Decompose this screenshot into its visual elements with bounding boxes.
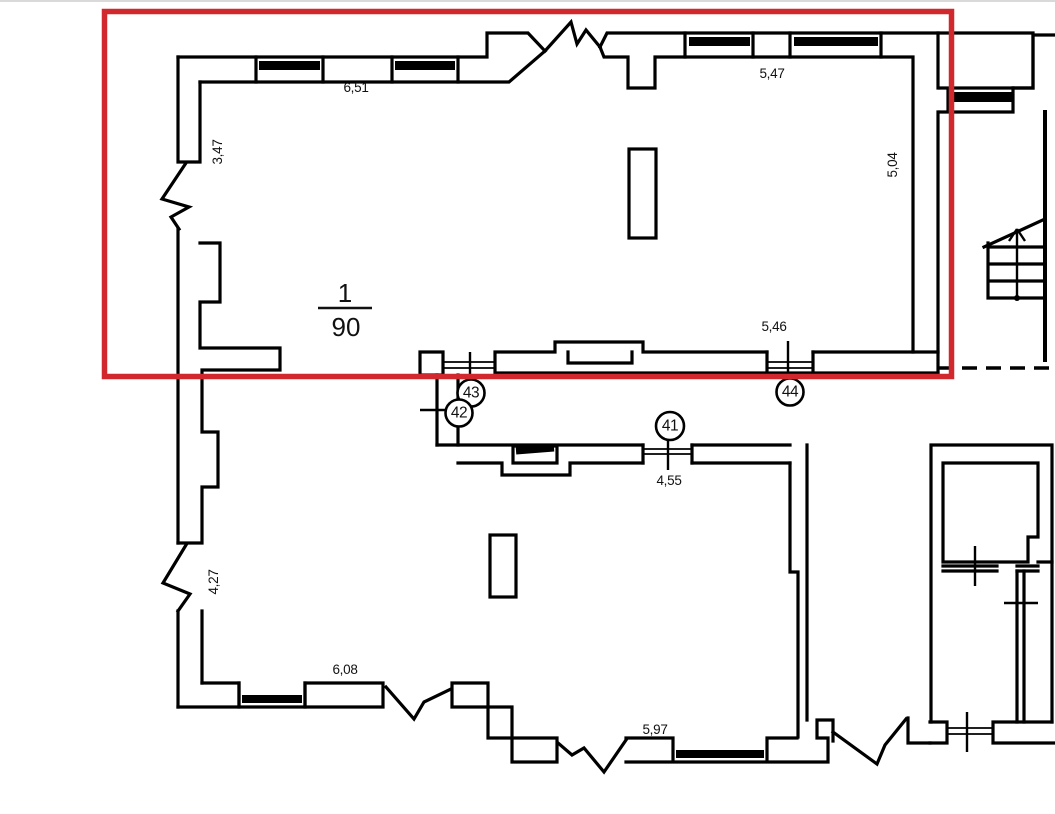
scale-label: 1 90	[318, 278, 372, 342]
window-top-left-a-glass	[259, 61, 320, 70]
marker-43-label: 43	[463, 385, 479, 402]
marker-41-label: 41	[662, 418, 678, 435]
marker-42: 42	[446, 400, 473, 427]
window-top-right-b-glass	[794, 37, 878, 46]
top-right-entrance	[1013, 35, 1055, 88]
floor-plan-svg: 43 42 41 44 6,51 5,47 3,47 5,04 5,46 4,5…	[0, 0, 1055, 814]
marker-44-label: 44	[782, 384, 799, 401]
marker-44: 44	[777, 379, 804, 406]
lower-left-break-line	[163, 545, 190, 611]
upper-left-wall-piece1	[178, 57, 200, 162]
right-building-inner-partition	[1017, 571, 1024, 722]
scale-numerator: 1	[338, 278, 352, 308]
dim-top-left: 6,51	[343, 80, 368, 95]
marker-42-label: 42	[451, 405, 467, 422]
lower-left-wall-piece	[178, 611, 202, 707]
stairs	[984, 219, 1045, 301]
stair-arrow-origin-dot	[1014, 295, 1020, 301]
upper-top-break-line	[545, 22, 600, 51]
bottom-break-line-3	[833, 719, 906, 764]
window-bottom-mid-glass	[676, 750, 764, 758]
upper-door-stub	[420, 352, 443, 375]
column-upper-room	[629, 149, 656, 238]
upper-top-left-wall-outer	[178, 33, 545, 57]
upper-door-threshold-right	[767, 362, 813, 368]
upper-left-break-line	[162, 163, 189, 229]
window-bottom-left-glass	[242, 695, 302, 703]
dim-right-upper: 5,04	[885, 152, 900, 178]
bottom-break-line-2	[558, 740, 626, 772]
bottom-step-wall	[452, 683, 557, 762]
right-building-outline	[931, 445, 1052, 722]
upper-top-right-wall-inner-with-pillar	[600, 47, 913, 352]
column-second-room	[490, 535, 516, 597]
upper-bottom-wall	[495, 342, 938, 373]
dim-left-upper: 3,47	[210, 139, 225, 164]
windows	[239, 33, 1013, 758]
right-building-bottom-threshold	[947, 728, 993, 734]
bottom-break-line-1	[386, 687, 451, 719]
dim-left-lower: 4,27	[206, 569, 221, 594]
upper-bottom-niche	[568, 352, 632, 363]
window-right-passage-glass	[953, 92, 1013, 102]
dim-mid-right: 5,46	[761, 319, 786, 334]
right-building-inner-room	[943, 463, 1038, 562]
dim-bottom-mid: 5,97	[642, 722, 667, 737]
dim-top-right: 5,47	[759, 66, 784, 81]
scale-denominator: 90	[332, 312, 361, 342]
second-room-top-wall	[437, 445, 790, 475]
window-top-left-b-glass	[395, 61, 455, 70]
survey-ticks	[420, 341, 1038, 752]
upper-room-walls	[162, 22, 1033, 543]
marker-41: 41	[656, 412, 684, 440]
point-markers: 43 42 41 44	[446, 379, 804, 441]
window-top-right-a-glass	[689, 37, 750, 46]
screen-top-edge	[0, 0, 1055, 2]
floor-plan-page: 43 42 41 44 6,51 5,47 3,47 5,04 5,46 4,5…	[0, 0, 1055, 814]
bottom-right-step-piece	[908, 718, 930, 743]
dim-mid-partition: 4,55	[656, 473, 681, 488]
left-wall-inner-mid-with-notches	[178, 243, 280, 543]
dim-bottom-left: 6,08	[332, 662, 357, 677]
right-building-bottom-wall	[930, 722, 1055, 743]
second-room-walls	[163, 445, 930, 772]
second-room-right-wall	[790, 445, 807, 737]
window-second-room-niche-glass	[516, 448, 554, 451]
